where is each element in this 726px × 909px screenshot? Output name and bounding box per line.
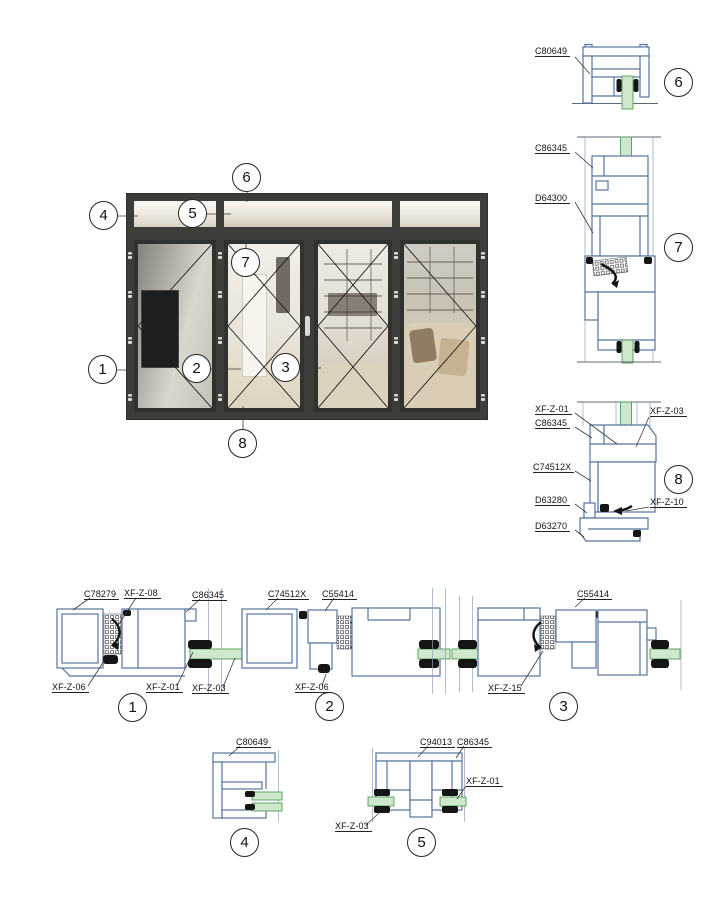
detail-6-drawing bbox=[572, 45, 658, 110]
part-label-c94013: C94013 bbox=[420, 737, 455, 748]
detail-3-drawing bbox=[452, 596, 681, 692]
part-label-c86345: C86345 bbox=[457, 737, 492, 748]
detail-number-3: 3 bbox=[549, 692, 578, 721]
callout-7: 7 bbox=[231, 248, 260, 277]
callout-8: 8 bbox=[228, 429, 257, 458]
detail-number-5: 5 bbox=[407, 828, 436, 857]
callout-3: 3 bbox=[271, 353, 300, 382]
part-label-c55414: C55414 bbox=[322, 589, 357, 600]
part-label-c80649: C80649 bbox=[535, 46, 570, 57]
part-label-xfz01: XF-Z-01 bbox=[535, 404, 572, 415]
part-label-xfz10: XF-Z-10 bbox=[650, 497, 687, 508]
part-label-xfz08: XF-Z-08 bbox=[124, 588, 161, 599]
drawing-sheet: C80649 C86345 D64300 XF-Z-01 XF-Z-03 C86… bbox=[0, 0, 726, 909]
part-label-c80649: C80649 bbox=[236, 737, 271, 748]
callout-2: 2 bbox=[182, 354, 211, 383]
callout-1: 1 bbox=[88, 355, 117, 384]
part-label-c86345: C86345 bbox=[535, 143, 570, 154]
detail-8-drawing bbox=[575, 402, 661, 541]
part-label-c86345: C86345 bbox=[535, 418, 570, 429]
detail-4-drawing bbox=[213, 746, 282, 822]
callout-5: 5 bbox=[178, 199, 207, 228]
detail-number-2: 2 bbox=[315, 692, 344, 721]
detail-7-drawing bbox=[575, 137, 661, 363]
part-label-d63270: D63270 bbox=[535, 521, 570, 532]
detail-number-6: 6 bbox=[664, 68, 693, 97]
detail-number-7: 7 bbox=[664, 233, 693, 262]
section-linework bbox=[0, 0, 726, 909]
detail-number-4: 4 bbox=[230, 828, 259, 857]
part-label-c78279: C78279 bbox=[84, 589, 119, 600]
part-label-xfz03: XF-Z-03 bbox=[650, 406, 687, 417]
detail-1-drawing bbox=[57, 588, 248, 694]
detail-number-8: 8 bbox=[664, 465, 693, 494]
part-label-c55414: C55414 bbox=[577, 589, 612, 600]
detail-5-drawing bbox=[366, 746, 466, 825]
part-label-xfz06: XF-Z-06 bbox=[52, 682, 89, 693]
callout-6: 6 bbox=[232, 163, 261, 192]
part-label-xfz03: XF-Z-03 bbox=[192, 683, 229, 694]
part-label-xfz15: XF-Z-15 bbox=[488, 683, 525, 694]
part-label-d64300: D64300 bbox=[535, 193, 570, 204]
part-label-d63280: D63280 bbox=[535, 495, 570, 506]
part-label-xfz01: XF-Z-01 bbox=[466, 776, 503, 787]
leader-lines bbox=[117, 192, 321, 430]
part-label-c86345: C86345 bbox=[192, 590, 227, 601]
callout-4: 4 bbox=[89, 201, 118, 230]
part-label-c74512x: C74512X bbox=[268, 589, 309, 600]
part-label-xfz03: XF-Z-03 bbox=[335, 821, 372, 832]
detail-number-1: 1 bbox=[118, 693, 147, 722]
detail-2-drawing bbox=[242, 588, 450, 694]
part-label-c74512x: C74512X bbox=[533, 462, 574, 473]
part-label-xfz01: XF-Z-01 bbox=[146, 682, 183, 693]
